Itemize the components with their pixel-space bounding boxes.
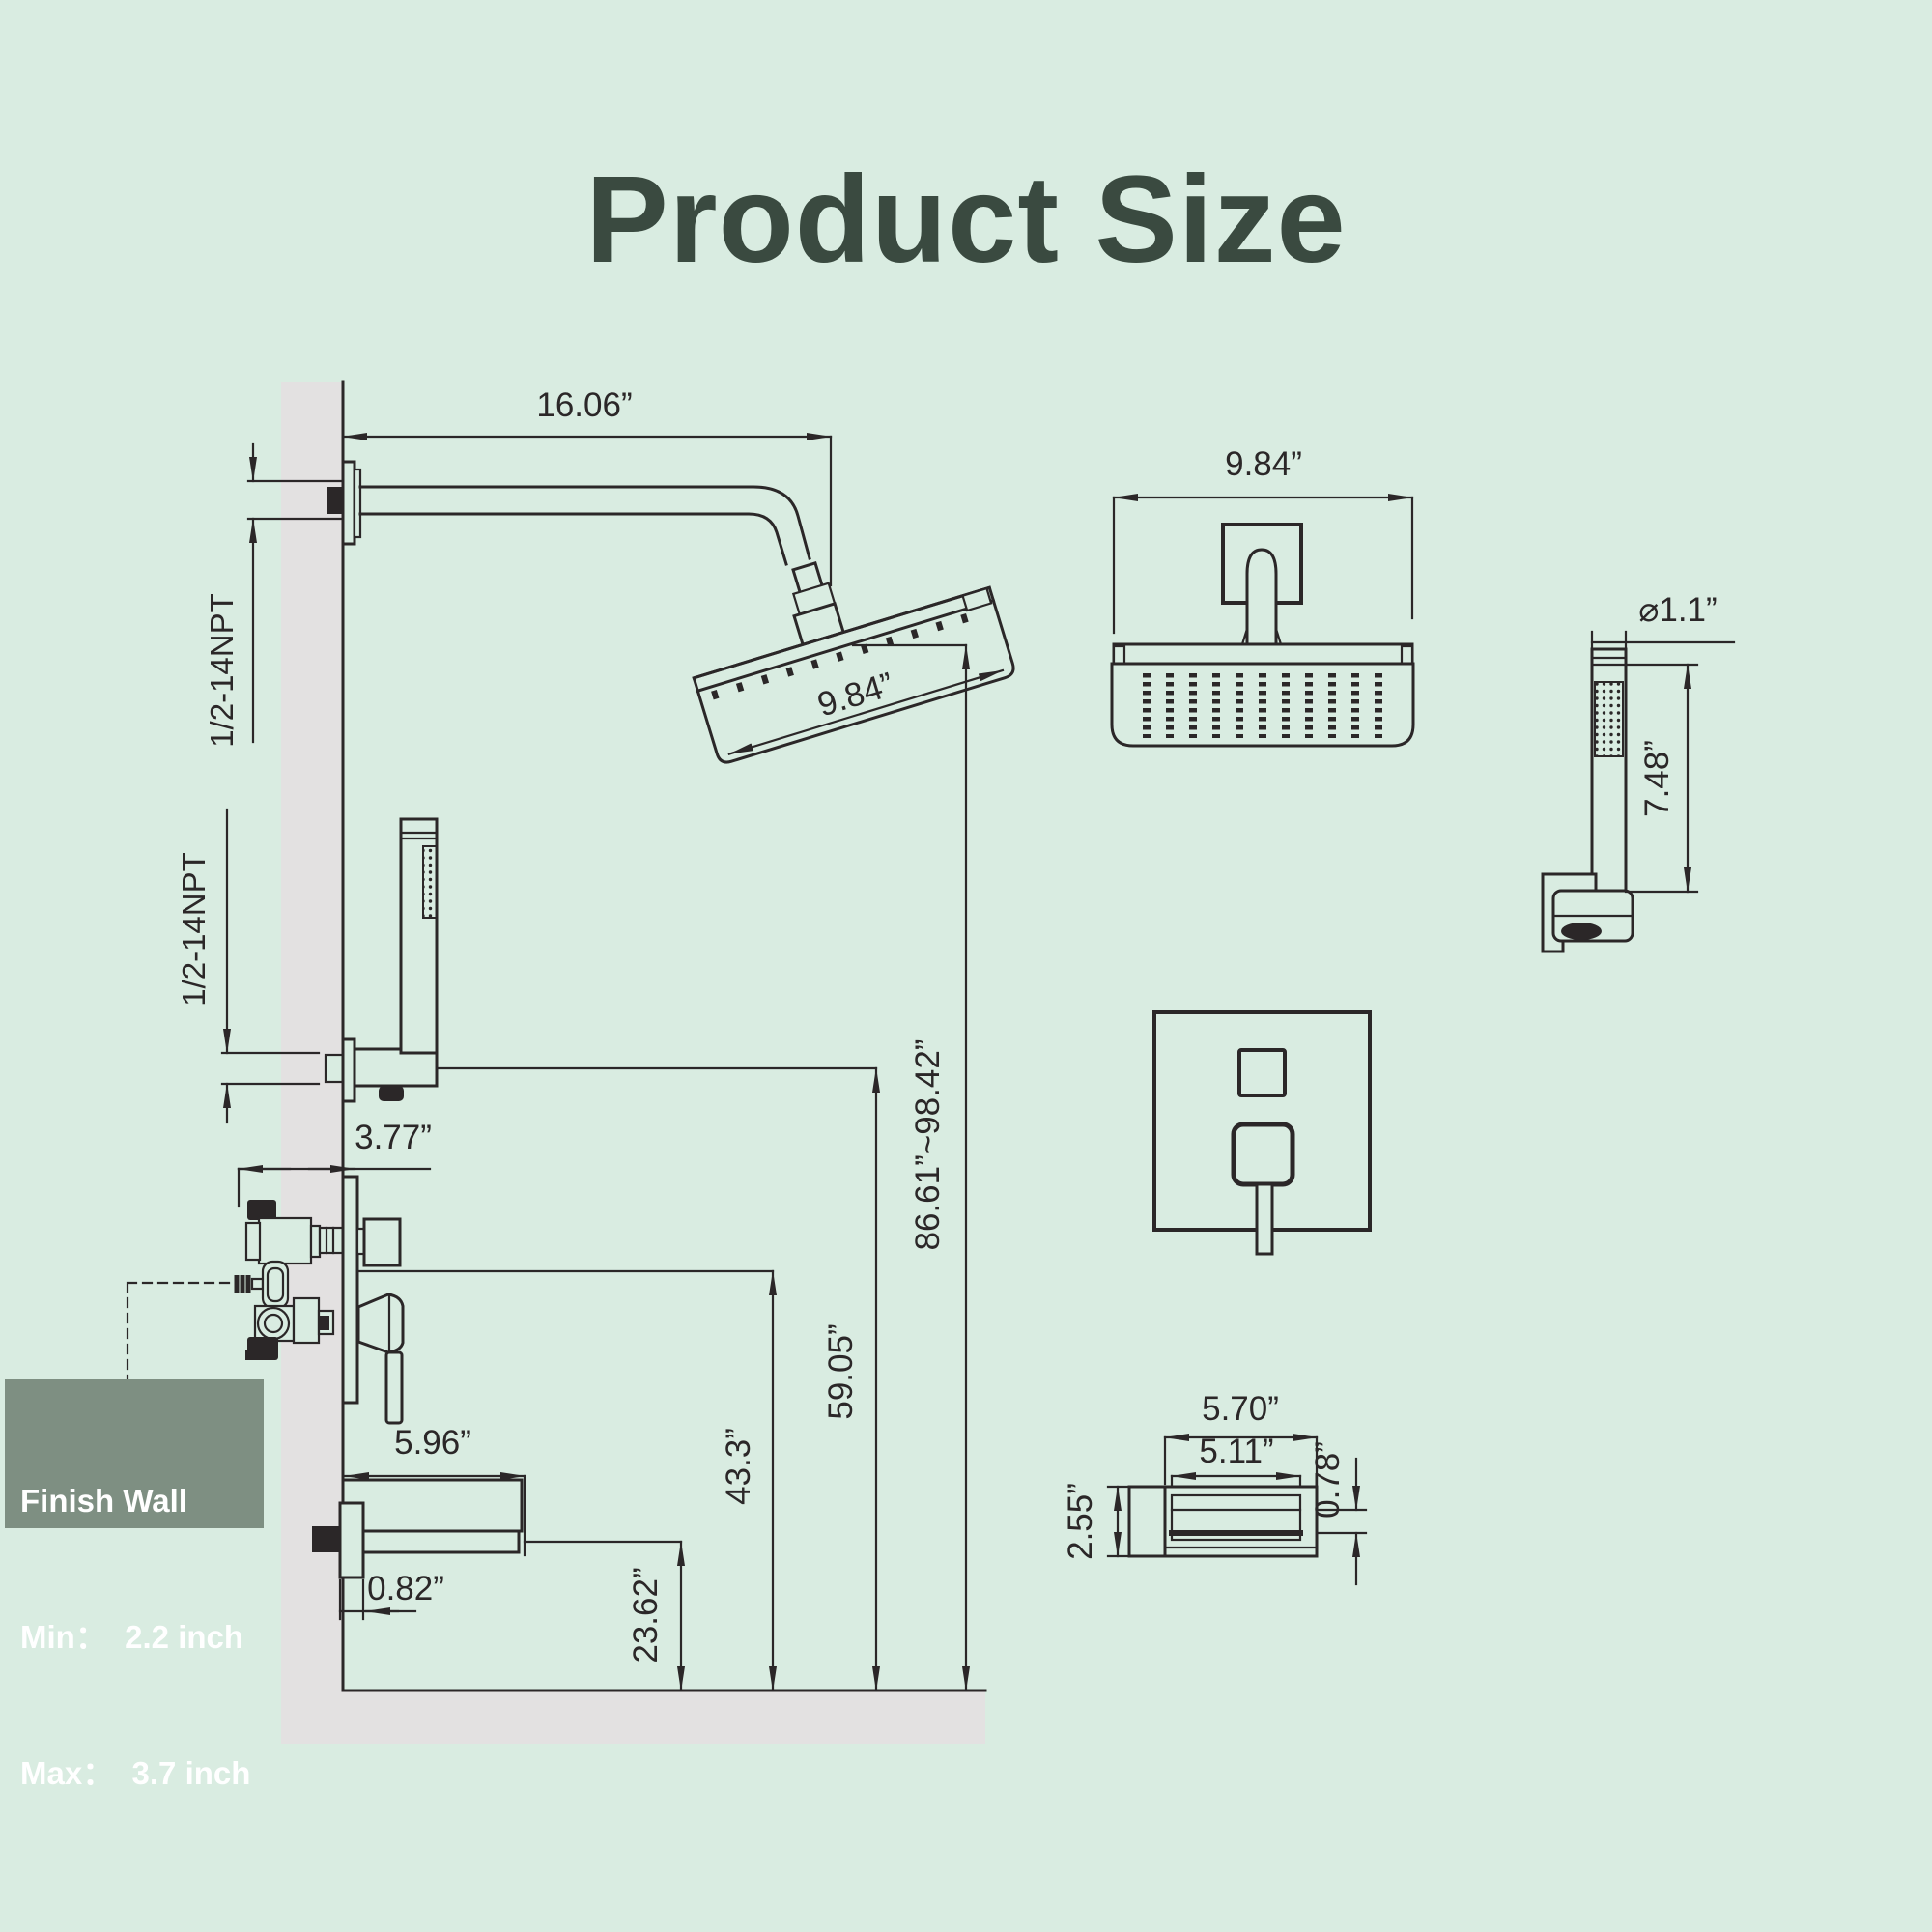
dim-spout-inner-label: 5.11” (1199, 1433, 1273, 1470)
dim-holder-floor-label: 59.05” (822, 1323, 860, 1419)
cup-gasket (1561, 923, 1602, 940)
arm-outer (360, 487, 810, 558)
dim-head-width-label: 9.84” (1225, 445, 1302, 483)
dim-spout-wall-label: 0.82” (367, 1570, 444, 1607)
npt-mid-label: 1/2-14NPT (176, 852, 212, 1007)
dim-head-floor-label: 86.61”~98.42” (909, 1039, 947, 1251)
valve-port-stem (252, 1279, 263, 1289)
valve-upper-left-cap (246, 1223, 260, 1260)
tub-spout-front: 5.70” 5.11” 2.55” 0.78” (1062, 1390, 1366, 1584)
arm-inner (360, 514, 786, 564)
valve-foot (245, 1350, 257, 1360)
dim-spout-length-label: 5.96” (394, 1424, 471, 1462)
finish-wall-note: Finish Wall Min： 2.2 inch Max： 3.7 inch (5, 1379, 264, 1528)
front-views: 9.84” ⌀1.1” 7.48” (1062, 445, 1734, 1584)
valve-nub-tip (320, 1316, 329, 1330)
product-size-diagram: 9.84” 16.06” 1/2-14NPT (0, 0, 1932, 1932)
spout-wall-nipple (312, 1526, 340, 1552)
trim-side (343, 1177, 403, 1423)
dim-arm-length-label: 16.06” (536, 386, 632, 424)
finish-wall-min: Min： 2.2 inch (20, 1614, 264, 1660)
spout-body (343, 1480, 522, 1531)
valve-upper-step (311, 1226, 320, 1257)
handle-hub (358, 1294, 403, 1352)
holder-flange (343, 1039, 355, 1101)
dim-spout-lip-label: 0.78” (1309, 1441, 1347, 1519)
spout-lip (363, 1531, 519, 1552)
holder-supply-nipple (326, 1055, 343, 1082)
spout-flange (340, 1503, 363, 1577)
dim-spout-height-label: 2.55” (1062, 1483, 1099, 1560)
handle-hub-front (1234, 1124, 1293, 1184)
valve-top-cap (247, 1200, 276, 1220)
page-title: Product Size (0, 149, 1932, 291)
finish-wall-max: Max： 3.7 inch (20, 1750, 264, 1796)
handle-lever (386, 1352, 402, 1423)
dim-spout-floor-label: 23.62” (627, 1567, 665, 1662)
valve-outlet-hole (265, 1315, 282, 1332)
head-top-plate (1114, 644, 1412, 664)
finish-wall-leader (128, 1283, 235, 1379)
valve-ribbed-port (237, 1275, 248, 1293)
floor-strip (281, 1690, 985, 1744)
arm-flange-lip (355, 469, 360, 537)
handle-lever-front (1257, 1184, 1272, 1254)
dim-handheld-length-label: 7.48” (1638, 740, 1676, 817)
finish-wall-title: Finish Wall (20, 1478, 264, 1523)
dim-valve-floor-label: 43.3” (720, 1428, 757, 1505)
spout-flange-front (1129, 1487, 1165, 1556)
holder-bracket (355, 1049, 437, 1086)
shower-head-side: 9.84” (672, 517, 1016, 765)
dim-valve-depth-label: 3.77” (355, 1119, 432, 1156)
arm-wall-nipple (327, 487, 343, 514)
valve-trim-front (1154, 1012, 1370, 1254)
shower-arm-assembly (327, 462, 810, 564)
wand-spray-band (423, 846, 437, 918)
shower-head-front: 9.84” (1112, 445, 1413, 746)
npt-top-label: 1/2-14NPT (204, 593, 240, 748)
arm-flange (343, 462, 355, 544)
valve-right-port (294, 1298, 319, 1343)
trim-plate-edge (343, 1177, 357, 1403)
dim-spout-length-label: 5.70” (1202, 1390, 1279, 1428)
valve-cartridge-inner (268, 1268, 283, 1301)
diverter-button (364, 1219, 400, 1265)
plate-tab-left (1114, 646, 1124, 664)
hose-nut (379, 1086, 404, 1101)
arm-front (1247, 550, 1276, 644)
diverter-button-front (1239, 1050, 1285, 1095)
plate-tab-right (1402, 646, 1412, 664)
dim-handheld-diameter-label: ⌀1.1” (1638, 591, 1717, 629)
wand-spray-band (1595, 682, 1623, 756)
valve-upper-body (259, 1218, 311, 1264)
valve-inlet-stem (320, 1228, 343, 1253)
hand-shower-front: ⌀1.1” 7.48” (1543, 591, 1734, 952)
